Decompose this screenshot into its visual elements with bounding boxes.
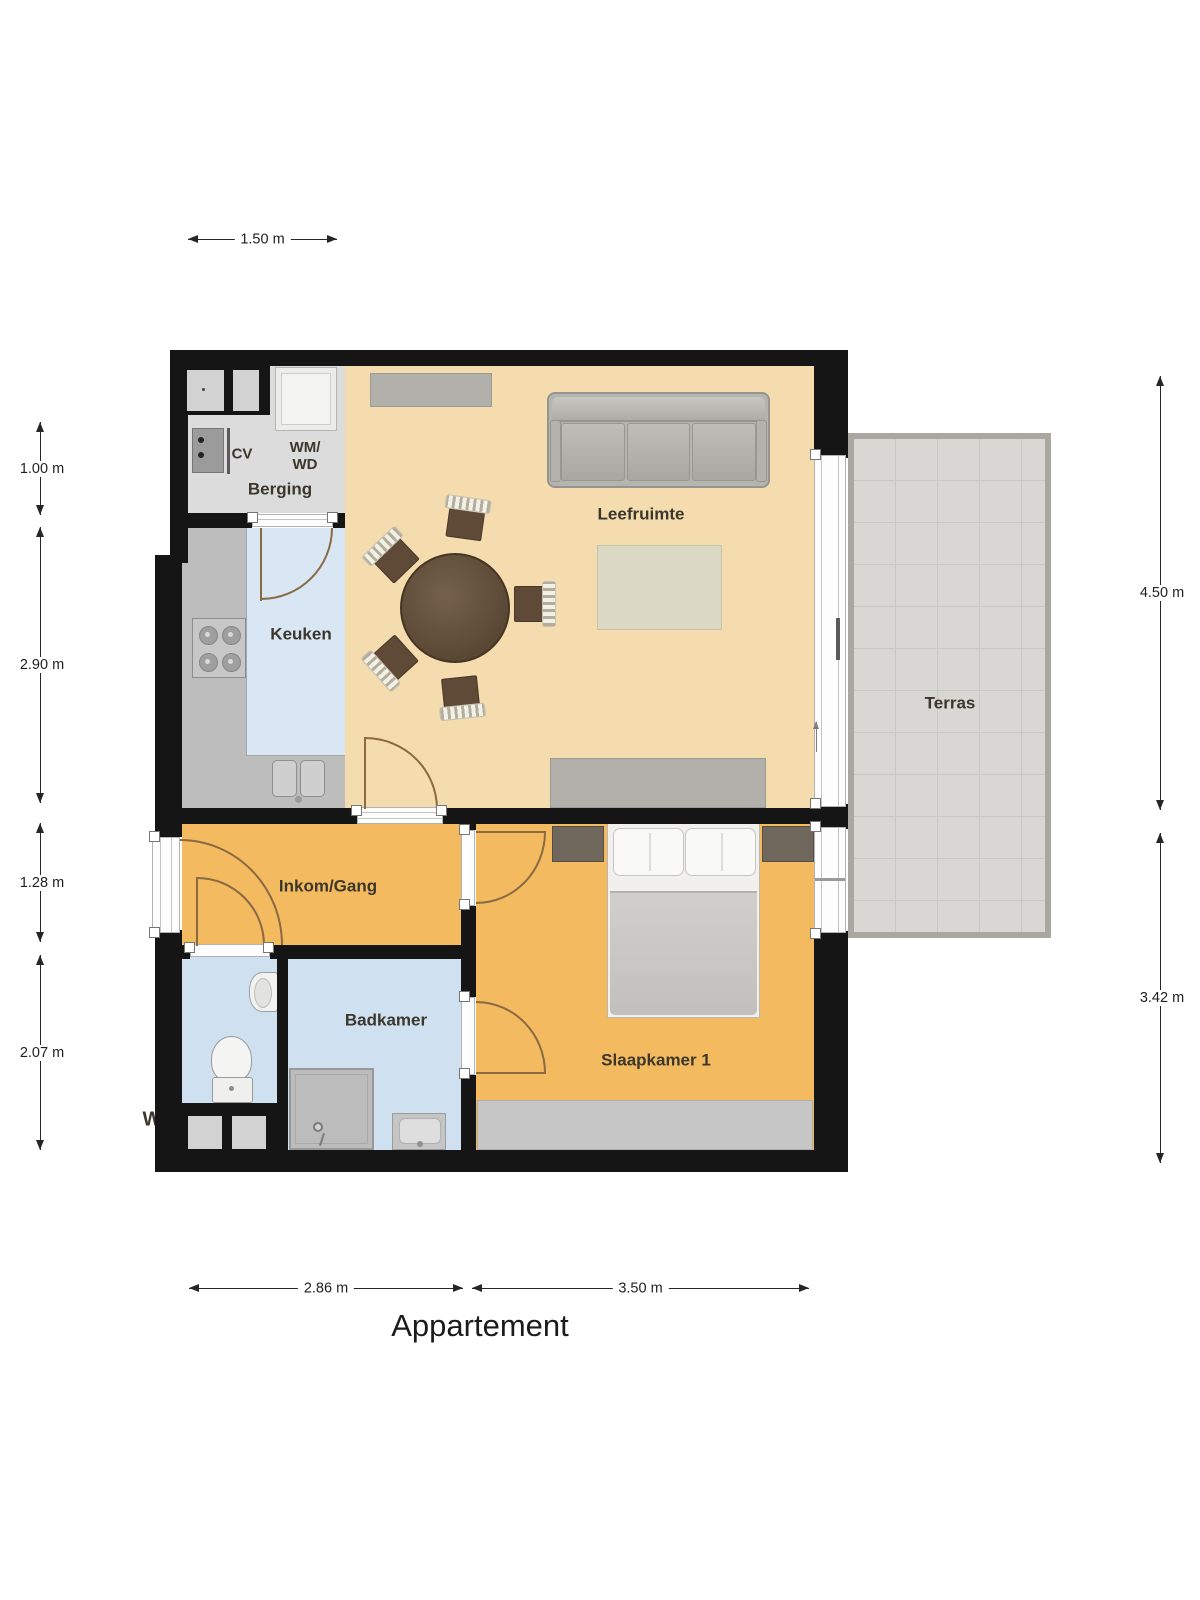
label-leefruimte: Leefruimte <box>598 506 685 523</box>
bath-bedroom-door-frame <box>461 997 475 1075</box>
sofa-back <box>552 397 765 422</box>
wc-door-threshold <box>190 944 270 957</box>
wc-sink <box>249 972 278 1012</box>
dim-left-128: 1.28 m <box>40 823 41 942</box>
dim-bottom-350: 3.50 m <box>472 1288 809 1289</box>
toilet-bowl <box>211 1036 252 1082</box>
pillow <box>685 828 756 876</box>
wall-bottom <box>155 1150 848 1172</box>
dining-table <box>400 553 510 663</box>
berging-door-threshold <box>252 514 333 527</box>
label-inkom-gang: Inkom/Gang <box>279 878 377 895</box>
wall-right-upper <box>814 350 848 458</box>
kitchen-faucet <box>295 796 302 803</box>
nightstand <box>552 826 604 862</box>
hall-living-door-threshold <box>357 807 443 824</box>
sliding-door-frame <box>814 455 846 807</box>
dim-left-290: 2.90 m <box>40 527 41 803</box>
sofa-armrest <box>756 420 767 482</box>
tv-cabinet <box>550 758 766 808</box>
dim-bottom-286: 2.86 m <box>189 1288 463 1289</box>
plan-title: Appartement <box>391 1308 569 1344</box>
shaft <box>233 370 259 411</box>
slide-direction-arrow <box>816 722 817 752</box>
wall-wc-bath <box>277 957 288 1105</box>
bed <box>607 822 760 1018</box>
stove <box>192 618 246 678</box>
kitchen-sink <box>272 760 297 797</box>
wall-left-mid <box>155 555 182 837</box>
wall-living-bedroom <box>443 808 814 824</box>
dim-left-207: 2.07 m <box>40 955 41 1150</box>
wall-hall-bottom-right <box>270 945 461 959</box>
dining-chair <box>440 494 492 544</box>
boiler-pipe <box>227 428 230 474</box>
sofa <box>547 392 770 488</box>
wall-top <box>170 350 848 366</box>
blanket <box>610 891 757 1015</box>
kitchen-sink <box>300 760 325 797</box>
shaft <box>188 1116 222 1149</box>
toilet-button <box>229 1086 234 1091</box>
boiler <box>192 428 224 473</box>
label-terras: Terras <box>925 695 976 712</box>
wall-hall-top-left <box>182 808 357 824</box>
wardrobe <box>477 1100 813 1150</box>
terras-floor <box>848 433 1051 938</box>
shower-head-icon <box>313 1122 323 1132</box>
hall-living-door-leaf <box>364 737 366 809</box>
dim-right-342: 3.42 m <box>1160 833 1161 1163</box>
wc-door-leaf <box>196 877 198 946</box>
washer-dryer <box>275 367 337 431</box>
dining-chair <box>436 673 486 722</box>
dim-top-150: 1.50 m <box>188 239 337 240</box>
floor-plan: CV WM/ WD Berging Keuken Leefruimte Inko… <box>0 0 1200 1600</box>
hall-bedroom-door-frame <box>461 830 475 906</box>
rug <box>597 545 722 630</box>
dim-right-450: 4.50 m <box>1160 376 1161 810</box>
entry-door-frame <box>152 837 180 933</box>
label-berging: Berging <box>248 481 312 498</box>
label-wm-wd: WM/ WD <box>290 439 321 473</box>
wall-hall-bedroom-mid <box>461 906 476 997</box>
boiler-knob <box>198 452 204 458</box>
shaft <box>232 1116 266 1149</box>
shower <box>289 1068 374 1150</box>
wall-bath-bedroom-low <box>461 1075 476 1150</box>
label-cv: CV <box>232 446 253 463</box>
dim-left-100: 1.00 m <box>40 422 41 515</box>
nightstand <box>762 826 814 862</box>
sofa-seats <box>561 423 756 481</box>
wall-right-lower <box>814 931 848 1172</box>
sliding-door-handle <box>836 618 840 660</box>
label-slaapkamer: Slaapkamer 1 <box>601 1052 711 1069</box>
boiler-knob <box>198 437 204 443</box>
bath-bedroom-door-leaf <box>476 1072 546 1074</box>
dining-chair <box>512 581 556 627</box>
hall-bedroom-door-leaf <box>476 831 546 833</box>
wall-berging-bottom <box>182 513 252 528</box>
bathroom-sink <box>392 1113 446 1150</box>
berging-door-leaf <box>260 528 262 601</box>
label-keuken: Keuken <box>270 626 331 643</box>
shaft <box>187 370 224 411</box>
wall-left-lower <box>155 930 182 1172</box>
label-badkamer: Badkamer <box>345 1012 427 1029</box>
pillow <box>613 828 684 876</box>
sideboard <box>370 373 492 407</box>
shaft-dot <box>202 388 205 391</box>
sofa-armrest <box>550 420 561 482</box>
